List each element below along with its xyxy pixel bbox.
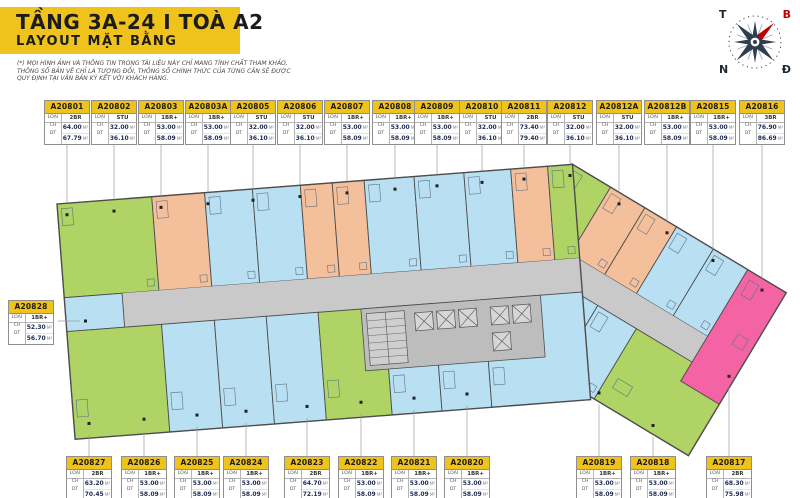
unit-type: 1BR+ bbox=[432, 114, 459, 123]
unit-dot bbox=[252, 199, 255, 202]
unit-dot bbox=[160, 206, 163, 209]
area-label: DT bbox=[548, 123, 565, 144]
unit-dot bbox=[394, 188, 397, 191]
area-unit: M² bbox=[377, 482, 383, 487]
area-unit: M² bbox=[683, 137, 689, 142]
area1-value: 53.00 bbox=[663, 124, 682, 131]
type-label: LOẠI CH bbox=[691, 114, 708, 123]
type-label: LOẠI CH bbox=[92, 114, 109, 123]
unit-dot bbox=[113, 210, 116, 213]
area-label: DT bbox=[186, 123, 203, 144]
area-unit: M² bbox=[323, 482, 329, 487]
area2-value: 86.69 bbox=[758, 135, 777, 142]
area1-value: 32.00 bbox=[249, 124, 268, 131]
area-label: DT bbox=[577, 479, 594, 498]
unit-dot bbox=[652, 424, 655, 427]
unit-dot bbox=[481, 181, 484, 184]
type-label: LOẠI CH bbox=[631, 470, 648, 479]
area2-value: 36.10 bbox=[296, 135, 315, 142]
unit-card-A20827: A20827LOẠI CH2BRDT63.20M²70.45M² bbox=[66, 456, 112, 498]
unit-type: 2BR bbox=[84, 470, 111, 479]
area-unit: M² bbox=[615, 493, 621, 498]
unit-type: 1BR+ bbox=[356, 470, 383, 479]
unit-dot bbox=[66, 213, 69, 216]
area2-value: 58.09 bbox=[140, 491, 159, 498]
area1-value: 53.00 bbox=[595, 480, 614, 487]
area-unit: M² bbox=[269, 126, 275, 131]
area2-value: 58.09 bbox=[595, 491, 614, 498]
unit-card-A20825: A20825LOẠI CH1BR+DT53.00M²58.09M² bbox=[174, 456, 220, 498]
area-unit: M² bbox=[177, 137, 183, 142]
type-label: LOẠI CH bbox=[645, 114, 662, 123]
area2-value: 36.10 bbox=[249, 135, 268, 142]
area-unit: M² bbox=[453, 137, 459, 142]
unit-type: 1BR+ bbox=[203, 114, 230, 123]
area1-value: 53.00 bbox=[242, 480, 261, 487]
area-unit: M² bbox=[316, 137, 322, 142]
unit-id: A20802 bbox=[92, 101, 136, 114]
area-unit: M² bbox=[213, 482, 219, 487]
unit-A20826 bbox=[162, 320, 223, 432]
unit-card-A20807: A20807LOẠI CH1BR+DT53.00M²58.09M² bbox=[324, 100, 370, 145]
area-label: DT bbox=[415, 123, 432, 144]
unit-type: 2BR bbox=[62, 114, 89, 123]
area-label: DT bbox=[460, 123, 477, 144]
type-label: LOẠI CH bbox=[445, 470, 462, 479]
area-label: DT bbox=[502, 123, 519, 144]
type-label: LOẠI CH bbox=[9, 314, 26, 323]
unit-dot bbox=[466, 392, 469, 395]
unit-type: STU bbox=[248, 114, 275, 123]
area2-value: 36.10 bbox=[478, 135, 497, 142]
area-label: DT bbox=[285, 479, 302, 498]
unit-type: 1BR+ bbox=[409, 470, 436, 479]
area-unit: M² bbox=[83, 126, 89, 131]
unit-A20824 bbox=[266, 312, 326, 424]
unit-card-A20803: A20803LOẠI CH1BR+DT53.00M²58.09M² bbox=[138, 100, 184, 145]
area2-value: 58.09 bbox=[709, 135, 728, 142]
unit-id: A20807 bbox=[325, 101, 369, 114]
area1-value: 73.40 bbox=[520, 124, 539, 131]
area-unit: M² bbox=[729, 126, 735, 131]
unit-id: A20822 bbox=[339, 457, 383, 470]
area-unit: M² bbox=[745, 482, 751, 487]
unit-id: A20824 bbox=[224, 457, 268, 470]
unit-dot bbox=[436, 184, 439, 187]
area-label: DT bbox=[631, 479, 648, 498]
unit-id: A20812B bbox=[645, 101, 689, 114]
unit-dot bbox=[761, 289, 764, 292]
unit-type: 2BR bbox=[302, 470, 329, 479]
unit-dot bbox=[728, 375, 731, 378]
area-unit: M² bbox=[213, 493, 219, 498]
area-unit: M² bbox=[483, 493, 489, 498]
unit-card-A20817: A20817LOẠI CH2BRDT68.30M²75.98M² bbox=[706, 456, 752, 498]
unit-card-A20828: A20828LOẠI CH1BR+DT52.30M²56.70M² bbox=[8, 300, 54, 345]
unit-dot bbox=[245, 410, 248, 413]
unit-card-A20819: A20819LOẠI CH1BR+DT53.00M²58.09M² bbox=[576, 456, 622, 498]
type-label: LOẠI CH bbox=[325, 114, 342, 123]
area2-value: 58.09 bbox=[242, 491, 261, 498]
unit-dot bbox=[360, 401, 363, 404]
area-unit: M² bbox=[729, 137, 735, 142]
unit-id: A20808 bbox=[373, 101, 417, 114]
area1-value: 52.30 bbox=[27, 324, 46, 331]
area1-value: 53.00 bbox=[157, 124, 176, 131]
unit-type: STU bbox=[565, 114, 592, 123]
area-label: DT bbox=[392, 479, 409, 498]
unit-A20807 bbox=[364, 177, 421, 275]
area-unit: M² bbox=[130, 137, 136, 142]
area2-value: 58.09 bbox=[433, 135, 452, 142]
unit-card-A20821: A20821LOẠI CH1BR+DT53.00M²58.09M² bbox=[391, 456, 437, 498]
area1-value: 32.00 bbox=[615, 124, 634, 131]
unit-id: A20817 bbox=[707, 457, 751, 470]
unit-card-A20812B: A20812BLOẠI CH1BR+DT53.00M²58.09M² bbox=[644, 100, 690, 145]
unit-dot bbox=[196, 414, 199, 417]
unit-card-A20815: A20815LOẠI CH1BR+DT53.00M²58.09M² bbox=[690, 100, 736, 145]
unit-id: A20811 bbox=[502, 101, 546, 114]
unit-dot bbox=[569, 174, 572, 177]
unit-card-A20809: A20809LOẠI CH1BR+DT53.00M²58.09M² bbox=[414, 100, 460, 145]
area-unit: M² bbox=[635, 137, 641, 142]
unit-type: 3BR bbox=[757, 114, 784, 123]
area-label: DT bbox=[67, 479, 84, 498]
area-unit: M² bbox=[540, 137, 546, 142]
area-label: DT bbox=[373, 123, 390, 144]
area1-value: 76.90 bbox=[758, 124, 777, 131]
type-label: LOẠI CH bbox=[740, 114, 757, 123]
unit-card-A20803A: A20803ALOẠI CH1BR+DT53.00M²58.09M² bbox=[185, 100, 231, 145]
unit-card-A20820: A20820LOẠI CH1BR+DT53.00M²58.09M² bbox=[444, 456, 490, 498]
area-unit: M² bbox=[586, 126, 592, 131]
area1-value: 53.00 bbox=[391, 124, 410, 131]
unit-A20803A bbox=[252, 185, 307, 282]
area2-value: 75.98 bbox=[725, 491, 744, 498]
unit-type: 1BR+ bbox=[648, 470, 675, 479]
area1-value: 53.00 bbox=[463, 480, 482, 487]
area-label: DT bbox=[597, 123, 614, 144]
area1-value: 64.70 bbox=[303, 480, 322, 487]
unit-dot bbox=[523, 178, 526, 181]
area1-value: 53.00 bbox=[357, 480, 376, 487]
unit-type: 2BR bbox=[519, 114, 546, 123]
area1-value: 32.00 bbox=[296, 124, 315, 131]
unit-id: A20827 bbox=[67, 457, 111, 470]
unit-id: A20815 bbox=[691, 101, 735, 114]
type-label: LOẠI CH bbox=[67, 470, 84, 479]
area-label: DT bbox=[122, 479, 139, 498]
unit-id: A20826 bbox=[122, 457, 166, 470]
area-unit: M² bbox=[430, 493, 436, 498]
unit-type: 1BR+ bbox=[192, 470, 219, 479]
area1-value: 53.00 bbox=[204, 124, 223, 131]
unit-A20828 bbox=[64, 293, 124, 331]
staircase bbox=[366, 311, 408, 366]
type-label: LOẠI CH bbox=[278, 114, 295, 123]
unit-card-A20808: A20808LOẠI CH1BR+DT53.00M²58.09M² bbox=[372, 100, 418, 145]
unit-id: A20828 bbox=[9, 301, 53, 314]
area2-value: 58.09 bbox=[204, 135, 223, 142]
area-unit: M² bbox=[160, 482, 166, 487]
area2-value: 72.19 bbox=[303, 491, 322, 498]
area1-value: 53.00 bbox=[193, 480, 212, 487]
area2-value: 36.10 bbox=[110, 135, 129, 142]
type-label: LOẠI CH bbox=[577, 470, 594, 479]
area1-value: 53.00 bbox=[709, 124, 728, 131]
area-unit: M² bbox=[262, 493, 268, 498]
floorplan-sheet: TẦNG 3A-24 I TOÀ A2 LAYOUT MẶT BẰNG (*) … bbox=[0, 0, 800, 498]
area-unit: M² bbox=[683, 126, 689, 131]
area2-value: 58.09 bbox=[410, 491, 429, 498]
area-label: DT bbox=[278, 123, 295, 144]
unit-id: A20810 bbox=[460, 101, 504, 114]
unit-card-A20812A: A20812ALOẠI CHSTUDT32.00M²36.10M² bbox=[596, 100, 642, 145]
area-unit: M² bbox=[323, 493, 329, 498]
area2-value: 58.09 bbox=[357, 491, 376, 498]
area-label: DT bbox=[139, 123, 156, 144]
type-label: LOẠI CH bbox=[597, 114, 614, 123]
type-label: LOẠI CH bbox=[339, 470, 356, 479]
area-label: DT bbox=[691, 123, 708, 144]
unit-A20827 bbox=[67, 324, 170, 439]
unit-card-A20818: A20818LOẠI CH1BR+DT53.00M²58.09M² bbox=[630, 456, 676, 498]
area2-value: 36.10 bbox=[566, 135, 585, 142]
unit-id: A20823 bbox=[285, 457, 329, 470]
area-unit: M² bbox=[130, 126, 136, 131]
unit-id: A20801 bbox=[45, 101, 89, 114]
area1-value: 64.00 bbox=[63, 124, 82, 131]
unit-dot bbox=[598, 391, 601, 394]
unit-dot bbox=[88, 422, 91, 425]
unit-card-A20824: A20824LOẠI CH1BR+DT53.00M²58.09M² bbox=[223, 456, 269, 498]
elevator-core bbox=[361, 295, 545, 371]
area-unit: M² bbox=[105, 493, 111, 498]
area-label: DT bbox=[175, 479, 192, 498]
area-label: DT bbox=[224, 479, 241, 498]
area-unit: M² bbox=[363, 126, 369, 131]
unit-dot bbox=[306, 405, 309, 408]
unit-dot bbox=[299, 195, 302, 198]
type-label: LOẠI CH bbox=[122, 470, 139, 479]
area1-value: 32.00 bbox=[110, 124, 129, 131]
area-unit: M² bbox=[483, 482, 489, 487]
area1-value: 32.00 bbox=[478, 124, 497, 131]
unit-type: STU bbox=[295, 114, 322, 123]
unit-type: 1BR+ bbox=[390, 114, 417, 123]
unit-id: A20803A bbox=[186, 101, 230, 114]
type-label: LOẠI CH bbox=[175, 470, 192, 479]
area-unit: M² bbox=[586, 137, 592, 142]
area-label: DT bbox=[339, 479, 356, 498]
unit-id: A20821 bbox=[392, 457, 436, 470]
area-label: DT bbox=[9, 323, 26, 344]
unit-A20808 bbox=[414, 173, 471, 271]
unit-dot bbox=[84, 320, 87, 323]
area2-value: 58.09 bbox=[343, 135, 362, 142]
unit-type: STU bbox=[614, 114, 641, 123]
type-label: LOẠI CH bbox=[231, 114, 248, 123]
area-label: DT bbox=[325, 123, 342, 144]
area-label: DT bbox=[707, 479, 724, 498]
area2-value: 56.70 bbox=[27, 335, 46, 342]
unit-type: 1BR+ bbox=[156, 114, 183, 123]
area1-value: 53.00 bbox=[343, 124, 362, 131]
unit-card-A20816: A20816LOẠI CH3BRDT76.90M²86.69M² bbox=[739, 100, 785, 145]
unit-card-A20805: A20805LOẠI CHSTUDT32.00M²36.10M² bbox=[230, 100, 276, 145]
type-label: LOẠI CH bbox=[373, 114, 390, 123]
area2-value: 79.40 bbox=[520, 135, 539, 142]
type-label: LOẠI CH bbox=[186, 114, 203, 123]
unit-id: A20809 bbox=[415, 101, 459, 114]
floor-plan bbox=[0, 0, 800, 498]
area-unit: M² bbox=[47, 337, 53, 342]
unit-dot bbox=[618, 202, 621, 205]
area-unit: M² bbox=[363, 137, 369, 142]
area-unit: M² bbox=[453, 126, 459, 131]
area1-value: 53.00 bbox=[649, 480, 668, 487]
area-unit: M² bbox=[269, 137, 275, 142]
type-label: LOẠI CH bbox=[285, 470, 302, 479]
area-unit: M² bbox=[105, 482, 111, 487]
type-label: LOẠI CH bbox=[502, 114, 519, 123]
area-unit: M² bbox=[669, 493, 675, 498]
area2-value: 36.10 bbox=[615, 135, 634, 142]
area-unit: M² bbox=[540, 126, 546, 131]
left-wing bbox=[57, 164, 591, 439]
unit-dot bbox=[712, 259, 715, 262]
unit-id: A20819 bbox=[577, 457, 621, 470]
unit-dot bbox=[207, 202, 210, 205]
unit-card-A20811: A20811LOẠI CH2BRDT73.40M²79.40M² bbox=[501, 100, 547, 145]
unit-card-A20826: A20826LOẠI CH1BR+DT53.00M²58.09M² bbox=[121, 456, 167, 498]
area2-value: 58.09 bbox=[193, 491, 212, 498]
unit-type: 1BR+ bbox=[662, 114, 689, 123]
unit-type: 1BR+ bbox=[594, 470, 621, 479]
area2-value: 58.09 bbox=[391, 135, 410, 142]
unit-dot bbox=[143, 418, 146, 421]
area2-value: 58.09 bbox=[157, 135, 176, 142]
area-unit: M² bbox=[745, 493, 751, 498]
unit-type: 1BR+ bbox=[708, 114, 735, 123]
type-label: LOẠI CH bbox=[707, 470, 724, 479]
unit-type: 1BR+ bbox=[26, 314, 53, 323]
area1-value: 53.00 bbox=[410, 480, 429, 487]
unit-A20809 bbox=[464, 169, 518, 266]
unit-type: 1BR+ bbox=[342, 114, 369, 123]
unit-A20801 bbox=[57, 197, 159, 298]
area-label: DT bbox=[645, 123, 662, 144]
unit-id: A20820 bbox=[445, 457, 489, 470]
area-label: DT bbox=[445, 479, 462, 498]
unit-card-A20806: A20806LOẠI CHSTUDT32.00M²36.10M² bbox=[277, 100, 323, 145]
area-unit: M² bbox=[778, 126, 784, 131]
area1-value: 53.00 bbox=[433, 124, 452, 131]
area-label: DT bbox=[231, 123, 248, 144]
area-unit: M² bbox=[430, 482, 436, 487]
area-unit: M² bbox=[177, 126, 183, 131]
unit-dot bbox=[413, 397, 416, 400]
area-unit: M² bbox=[635, 126, 641, 131]
area-unit: M² bbox=[377, 493, 383, 498]
area-unit: M² bbox=[615, 482, 621, 487]
area-unit: M² bbox=[47, 326, 53, 331]
type-label: LOẠI CH bbox=[548, 114, 565, 123]
unit-id: A20803 bbox=[139, 101, 183, 114]
unit-card-A20802: A20802LOẠI CHSTUDT32.00M²36.10M² bbox=[91, 100, 137, 145]
unit-card-A20812: A20812LOẠI CHSTUDT32.00M²36.10M² bbox=[547, 100, 593, 145]
unit-dot bbox=[346, 191, 349, 194]
unit-type: STU bbox=[477, 114, 504, 123]
area-unit: M² bbox=[224, 137, 230, 142]
type-label: LOẠI CH bbox=[392, 470, 409, 479]
type-label: LOẠI CH bbox=[224, 470, 241, 479]
unit-id: A20818 bbox=[631, 457, 675, 470]
area2-value: 58.09 bbox=[663, 135, 682, 142]
area-unit: M² bbox=[778, 137, 784, 142]
unit-card-A20823: A20823LOẠI CH2BRDT64.70M²72.19M² bbox=[284, 456, 330, 498]
unit-card-A20810: A20810LOẠI CHSTUDT32.00M²36.10M² bbox=[459, 100, 505, 145]
area-label: DT bbox=[92, 123, 109, 144]
unit-id: A20812A bbox=[597, 101, 641, 114]
unit-type: 1BR+ bbox=[139, 470, 166, 479]
area-unit: M² bbox=[669, 482, 675, 487]
unit-type: 2BR bbox=[724, 470, 751, 479]
unit-type: 1BR+ bbox=[241, 470, 268, 479]
area2-value: 67.79 bbox=[63, 135, 82, 142]
area-unit: M² bbox=[160, 493, 166, 498]
area1-value: 63.20 bbox=[85, 480, 104, 487]
unit-type: 1BR+ bbox=[462, 470, 489, 479]
area2-value: 70.45 bbox=[85, 491, 104, 498]
unit-type: STU bbox=[109, 114, 136, 123]
area1-value: 32.00 bbox=[566, 124, 585, 131]
unit-A20825 bbox=[214, 316, 274, 428]
unit-id: A20825 bbox=[175, 457, 219, 470]
area-unit: M² bbox=[262, 482, 268, 487]
area2-value: 58.09 bbox=[649, 491, 668, 498]
area-unit: M² bbox=[83, 137, 89, 142]
unit-id: A20812 bbox=[548, 101, 592, 114]
unit-id: A20806 bbox=[278, 101, 322, 114]
area2-value: 58.09 bbox=[463, 491, 482, 498]
unit-card-A20822: A20822LOẠI CH1BR+DT53.00M²58.09M² bbox=[338, 456, 384, 498]
area1-value: 68.30 bbox=[725, 480, 744, 487]
unit-id: A20816 bbox=[740, 101, 784, 114]
type-label: LOẠI CH bbox=[139, 114, 156, 123]
unit-id: A20805 bbox=[231, 101, 275, 114]
area-label: DT bbox=[740, 123, 757, 144]
unit-A20803 bbox=[205, 189, 260, 286]
unit-card-A20801: A20801LOẠI CH2BRDT64.00M²67.79M² bbox=[44, 100, 90, 145]
type-label: LOẠI CH bbox=[460, 114, 477, 123]
area-unit: M² bbox=[224, 126, 230, 131]
type-label: LOẠI CH bbox=[45, 114, 62, 123]
unit-dot bbox=[666, 231, 669, 234]
area-label: DT bbox=[45, 123, 62, 144]
area-unit: M² bbox=[316, 126, 322, 131]
area1-value: 53.00 bbox=[140, 480, 159, 487]
type-label: LOẠI CH bbox=[415, 114, 432, 123]
